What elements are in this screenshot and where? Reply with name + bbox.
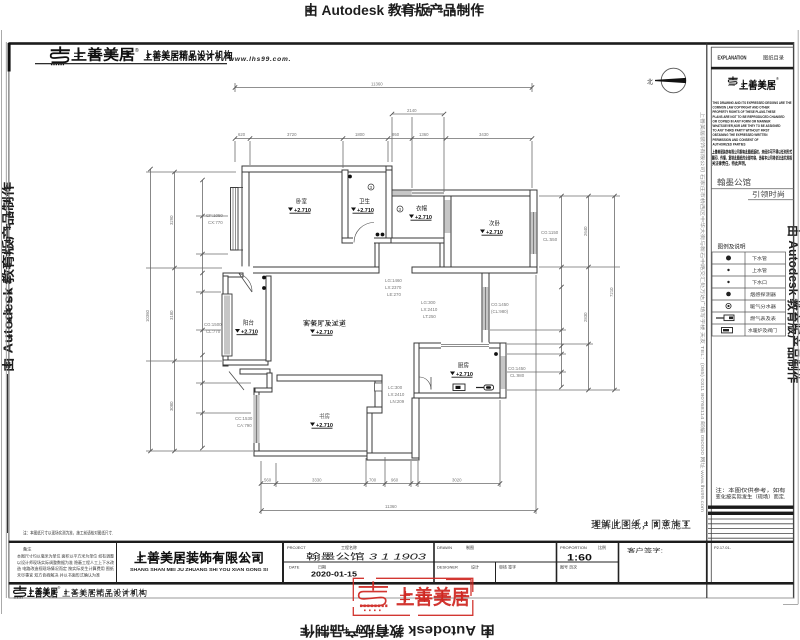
svg-text:翰墨公馆 3 1 1903: 翰墨公馆 3 1 1903 bbox=[306, 552, 426, 562]
svg-text:PLANS ARE NOT TO BE REPRODUCED: PLANS ARE NOT TO BE REPRODUCED CHANGED bbox=[713, 115, 785, 119]
svg-text:LX:2370: LX:2370 bbox=[385, 285, 402, 290]
svg-text:3330: 3330 bbox=[312, 478, 322, 483]
svg-text:®: ® bbox=[776, 76, 779, 81]
svg-text:SHANG SHAN MEI JU ZHUANG SHI Y: SHANG SHAN MEI JU ZHUANG SHI YOU XIAN GO… bbox=[130, 567, 268, 572]
svg-text:上善美居: 上善美居 bbox=[396, 585, 470, 609]
svg-text:书房: 书房 bbox=[319, 413, 330, 421]
svg-text:CG:1450: CG:1450 bbox=[508, 366, 526, 371]
svg-text:LC:300: LC:300 bbox=[388, 385, 403, 390]
svg-text:上善美居装饰有限公司 石家庄市桥西区中华大街与新石中路交汇处: 上善美居装饰有限公司 石家庄市桥西区中华大街与新石中路交汇处万达广场写字楼 天友… bbox=[699, 112, 706, 512]
svg-text:下水管: 下水管 bbox=[752, 255, 767, 262]
svg-text:THIS DRAWING AND ITS EXPRESSED: THIS DRAWING AND ITS EXPRESSED DESIGNS A… bbox=[713, 101, 792, 105]
svg-text:1:60: 1:60 bbox=[567, 553, 592, 564]
svg-text:LE:270: LE:270 bbox=[387, 292, 401, 297]
svg-text:水暖炉及阀门: 水暖炉及阀门 bbox=[748, 327, 777, 334]
svg-text:北: 北 bbox=[647, 78, 653, 86]
svg-text:以设计师现场实际调整数据为准 隐蔽工程人工上下水改: 以设计师现场实际调整数据为准 隐蔽工程人工上下水改 bbox=[17, 560, 114, 565]
svg-text:CF:1050: CF:1050 bbox=[206, 213, 223, 218]
svg-text:DRAWN: DRAWN bbox=[437, 545, 452, 550]
svg-text:LN:209: LN:209 bbox=[390, 399, 405, 404]
svg-text:PROPORTION: PROPORTION bbox=[560, 545, 587, 550]
svg-text:AUTHORIZED PARTIES: AUTHORIZED PARTIES bbox=[713, 142, 746, 146]
svg-text:PERMISSION AND CONSENT OF: PERMISSION AND CONSENT OF bbox=[713, 138, 760, 142]
svg-text:EXPLANATION: EXPLANATION bbox=[718, 56, 747, 62]
svg-text:P2.17.01-: P2.17.01- bbox=[714, 545, 732, 550]
svg-text:560: 560 bbox=[264, 478, 272, 483]
svg-text:®: ® bbox=[58, 586, 61, 590]
svg-text:11360: 11360 bbox=[371, 82, 383, 87]
svg-text:烟感探测器: 烟感探测器 bbox=[750, 291, 776, 298]
svg-text:图号 页次: 图号 页次 bbox=[560, 564, 577, 570]
svg-text:CG:1450: CG:1450 bbox=[491, 302, 509, 307]
svg-text:翰墨公馆: 翰墨公馆 bbox=[717, 177, 751, 187]
svg-text:OR COPIED IN ANY FORM OR MANNE: OR COPIED IN ANY FORM OR MANNER bbox=[713, 119, 771, 123]
svg-text:CG:1150: CG:1150 bbox=[541, 230, 559, 235]
svg-text:LX:2410: LX:2410 bbox=[388, 392, 405, 397]
svg-text:3720: 3720 bbox=[287, 132, 297, 137]
svg-text:620: 620 bbox=[238, 132, 246, 137]
svg-text:造 电路改造视现场情况而定 按实际发生计算费用 图纸: 造 电路改造视现场情况而定 按实际发生计算费用 图纸 bbox=[17, 566, 114, 571]
svg-text:CG:1500: CG:1500 bbox=[204, 322, 222, 327]
svg-text:1800: 1800 bbox=[355, 132, 365, 137]
svg-text:LT:250: LT:250 bbox=[423, 314, 436, 319]
svg-text:700: 700 bbox=[369, 478, 377, 483]
svg-text:变化按实际发生（现场）而定.: 变化按实际发生（现场）而定. bbox=[716, 494, 786, 501]
svg-text:工程名称: 工程名称 bbox=[341, 544, 357, 550]
svg-text:www.lhs99.com.: www.lhs99.com. bbox=[229, 56, 291, 63]
svg-text:关法律责任，特此声明。: 关法律责任，特此声明。 bbox=[712, 160, 748, 167]
svg-text:阳台: 阳台 bbox=[243, 319, 254, 327]
svg-text:10360: 10360 bbox=[145, 309, 150, 322]
svg-text:7210: 7210 bbox=[609, 287, 614, 297]
svg-text:CL:980: CL:980 bbox=[510, 373, 525, 378]
svg-text:厨房: 厨房 bbox=[458, 362, 469, 370]
svg-text:1360: 1360 bbox=[419, 132, 429, 137]
svg-text:11360: 11360 bbox=[385, 504, 397, 509]
svg-text:上善美居: 上善美居 bbox=[71, 46, 135, 64]
svg-text:上水管: 上水管 bbox=[752, 267, 767, 274]
svg-text:3430: 3430 bbox=[479, 132, 489, 137]
svg-text:上善美居: 上善美居 bbox=[739, 79, 776, 92]
svg-text:WHATSOEVER,NOR ARE THEY TO BE: WHATSOEVER,NOR ARE THEY TO BE ASSIGNED bbox=[713, 124, 781, 128]
svg-text:960: 960 bbox=[391, 478, 399, 483]
svg-text:设计: 设计 bbox=[471, 564, 479, 570]
svg-text:图纸目录: 图纸目录 bbox=[763, 54, 784, 62]
svg-text:次卧: 次卧 bbox=[489, 220, 500, 228]
svg-text:COMMON LAW COPYRIGHT AND OTHER: COMMON LAW COPYRIGHT AND OTHER bbox=[713, 106, 770, 110]
svg-text:客餐厅及过道: 客餐厅及过道 bbox=[303, 319, 346, 328]
svg-text:3290: 3290 bbox=[169, 215, 174, 225]
svg-text:PROPERTY RIGHTS OF THESE PLANS: PROPERTY RIGHTS OF THESE PLANS.THESE bbox=[713, 110, 776, 114]
svg-text:本图尺寸均以毫米为单位 面积以平方米为单位 如有调整: 本图尺寸均以毫米为单位 面积以平方米为单位 如有调整 bbox=[17, 554, 114, 559]
svg-text:2020-01-15: 2020-01-15 bbox=[311, 570, 358, 579]
svg-text:比例: 比例 bbox=[598, 544, 606, 550]
svg-text:图例及说明: 图例及说明 bbox=[718, 243, 746, 251]
svg-text:®: ® bbox=[135, 47, 139, 54]
svg-text:由 Autodesk 教育版产品制作: 由 Autodesk 教育版产品制作 bbox=[299, 623, 495, 639]
svg-text:LG:1460: LG:1460 bbox=[385, 278, 402, 283]
svg-text:CA:790: CA:790 bbox=[237, 423, 252, 428]
svg-text:备注: 备注 bbox=[23, 546, 32, 553]
svg-text:2830: 2830 bbox=[583, 312, 588, 322]
svg-text:950: 950 bbox=[392, 132, 400, 137]
svg-text:引领时尚: 引领时尚 bbox=[752, 190, 785, 199]
svg-text:注：本图仅供参考，如有: 注：本图仅供参考，如有 bbox=[716, 487, 786, 494]
svg-text:注：本图纸尺寸以现场实测为准，施工前请核对图纸尺寸.: 注：本图纸尺寸以现场实测为准，施工前请核对图纸尺寸. bbox=[23, 530, 113, 537]
svg-text:3080: 3080 bbox=[169, 401, 174, 411]
svg-text:由 Autodesk 教育版产品制作: 由 Autodesk 教育版产品制作 bbox=[1, 181, 16, 372]
svg-text:DATE: DATE bbox=[289, 565, 300, 570]
svg-text:卫生: 卫生 bbox=[359, 198, 370, 206]
svg-text:审核 签字: 审核 签字 bbox=[499, 564, 516, 570]
svg-text:燃气表及表: 燃气表及表 bbox=[750, 315, 776, 322]
svg-text:卧室: 卧室 bbox=[296, 198, 307, 206]
svg-text:下水口: 下水口 bbox=[752, 279, 767, 286]
svg-text:3180: 3180 bbox=[169, 310, 174, 320]
svg-text:LX:2410: LX:2410 bbox=[421, 307, 438, 312]
svg-text:制图: 制图 bbox=[466, 544, 474, 550]
svg-text:TO ANY THIRD PARTY WITHOUT FIR: TO ANY THIRD PARTY WITHOUT FIRST bbox=[713, 129, 771, 133]
svg-text:客户签字:: 客户签字: bbox=[627, 547, 664, 555]
svg-text:2640: 2640 bbox=[583, 226, 588, 236]
svg-text:2140: 2140 bbox=[407, 108, 417, 113]
svg-text:PROJECT: PROJECT bbox=[287, 545, 306, 550]
svg-text:CL:550: CL:550 bbox=[543, 237, 558, 242]
svg-text:(CL:980): (CL:980) bbox=[491, 309, 509, 314]
svg-text:衣帽: 衣帽 bbox=[416, 205, 427, 213]
svg-text:暖气分水器: 暖气分水器 bbox=[750, 303, 776, 310]
svg-text:LG:300: LG:300 bbox=[421, 300, 436, 305]
svg-text:OBTAINING THE EXPRESSED WRITTE: OBTAINING THE EXPRESSED WRITTEN bbox=[713, 133, 768, 137]
svg-text:CC:1530: CC:1530 bbox=[235, 416, 253, 421]
svg-text:未尽事宜 双方协商解决 并以书面形式确认为准: 未尽事宜 双方协商解决 并以书面形式确认为准 bbox=[17, 572, 100, 577]
svg-text:由 Autodesk 教育版产品制作: 由 Autodesk 教育版产品制作 bbox=[304, 2, 485, 18]
svg-text:3020: 3020 bbox=[452, 478, 462, 483]
svg-text:DESIGNER: DESIGNER bbox=[437, 565, 458, 570]
svg-text:CX:770: CX:770 bbox=[208, 220, 223, 225]
